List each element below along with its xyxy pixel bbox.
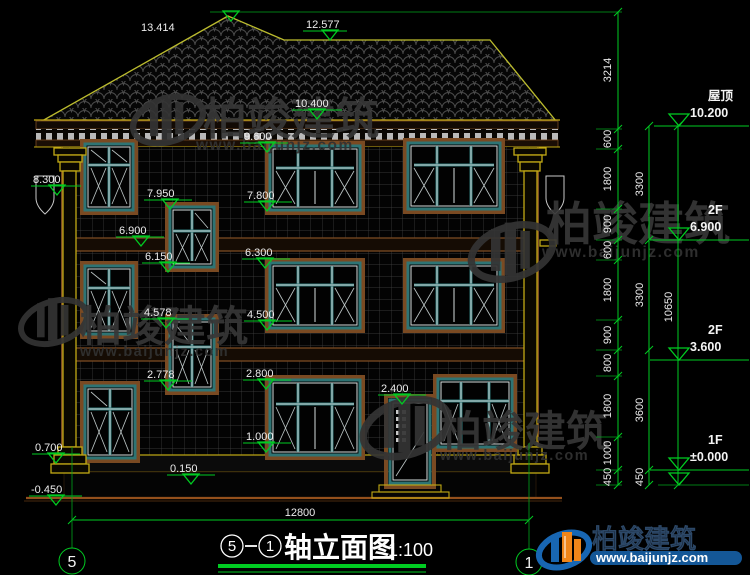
drawing-title: 轴立面图 <box>284 531 396 563</box>
title-bubble-right-number: 1 <box>266 538 274 555</box>
window-3f-stair <box>167 204 217 270</box>
title-block: 5 1 轴立面图 1:100 <box>218 531 433 572</box>
axis-number: 1 <box>525 555 534 572</box>
dim-subtotal: 3600 <box>634 398 646 422</box>
dim-segment: 3214 <box>602 58 614 82</box>
level-value: 2.778 <box>147 369 175 381</box>
brand-logo: 柏竣建筑 www.baijunjz.com <box>534 524 742 574</box>
level-value: 6.150 <box>145 251 173 263</box>
cad-elevation-screenshot: 柏竣建筑 www.baijunjz.com 柏竣建筑 www.baijunjz.… <box>0 0 750 575</box>
window-3f-right <box>405 140 503 212</box>
window-1f-center <box>267 377 363 458</box>
floor-name: 2F <box>708 323 723 337</box>
elevation-drawing: 柏竣建筑 www.baijunjz.com 柏竣建筑 www.baijunjz.… <box>0 0 750 575</box>
level-value: 13.414 <box>141 22 175 34</box>
watermark-top: 柏竣建筑 www.baijunjz.com <box>127 88 379 154</box>
window-3f-left <box>82 141 136 213</box>
dim-segment: 1800 <box>602 167 614 191</box>
title-bubble-left-number: 5 <box>228 538 236 555</box>
level-value: 12.577 <box>306 19 340 31</box>
watermark-url: www.baijunjz.com <box>541 244 700 261</box>
floor-elevation: ±0.000 <box>690 450 728 464</box>
level-value: 8.300 <box>33 174 61 186</box>
dim-subtotal: 3300 <box>634 172 646 196</box>
level-value: 0.700 <box>35 442 63 454</box>
dim-segment: 1000 <box>602 441 614 465</box>
axis-bubble-left: 5 <box>59 548 85 574</box>
dim-overall: 10650 <box>663 292 675 323</box>
brand-logo-url: www.baijunjz.com <box>595 550 708 565</box>
watermark-url: www.baijunjz.com <box>79 344 229 360</box>
level-value: 6.300 <box>245 247 273 259</box>
floor-elevation: 10.200 <box>690 106 728 120</box>
floor-name: 屋顶 <box>708 88 734 103</box>
dim-segment: 600 <box>602 130 614 148</box>
level-value: 9.600 <box>244 131 272 143</box>
level-value: 7.950 <box>147 188 175 200</box>
window-2f-center <box>267 260 363 331</box>
level-value: 2.800 <box>246 368 274 380</box>
axis-number: 5 <box>68 554 77 571</box>
level-value: 7.800 <box>247 190 275 202</box>
level-value: 4.578 <box>144 307 172 319</box>
overall-width-dim: 12800 <box>285 507 316 519</box>
dim-segment: 1800 <box>602 394 614 418</box>
level-value: 1.000 <box>246 431 274 443</box>
watermark-url: www.baijunjz.com <box>195 137 354 154</box>
drawing-scale: 1:100 <box>388 540 433 560</box>
title-underline-thick <box>218 564 426 568</box>
dim-segment: 600 <box>602 241 614 259</box>
level-value: 4.500 <box>247 309 275 321</box>
level-mark-12-577: 12.577 <box>303 19 347 40</box>
floor-name: 1F <box>708 433 723 447</box>
watermark-left: 柏竣建筑 www.baijunjz.com <box>15 292 248 360</box>
dim-segment: 900 <box>602 215 614 233</box>
brand-logo-icon <box>534 526 594 574</box>
level-value: 2.400 <box>381 383 409 395</box>
foundation <box>64 472 536 498</box>
window-1f-left <box>82 383 138 461</box>
level-value: -0.450 <box>31 484 62 496</box>
watermark-url: www.baijunjz.com <box>439 448 589 464</box>
ground-line <box>24 498 562 501</box>
floor-elevation: 3.600 <box>690 340 721 354</box>
level-value: 10.400 <box>295 98 329 110</box>
dim-segment: 1800 <box>602 278 614 302</box>
floor-band-3f <box>62 238 538 251</box>
floor-elevation: 6.900 <box>690 220 721 234</box>
dim-subtotal: 3300 <box>634 283 646 307</box>
floor-level-symbols: 屋顶 10.200 2F 6.900 2F 3.600 1F ±0.000 <box>650 88 749 485</box>
floor-level-roof: 屋顶 10.200 <box>654 88 749 126</box>
floor-name: 2F <box>708 203 723 217</box>
floor-level-1f: 1F ±0.000 <box>650 433 749 470</box>
level-value: 6.900 <box>119 225 147 237</box>
dim-segment: 450 <box>602 468 614 486</box>
dim-segment: 900 <box>602 326 614 344</box>
floor-level-ground <box>658 473 749 485</box>
window-2f-right <box>405 260 503 331</box>
dim-segment: 800 <box>602 354 614 372</box>
level-value: 0.150 <box>170 463 198 475</box>
dim-subtotal: 450 <box>634 468 646 486</box>
floor-level-2f: 2F 3.600 <box>650 323 749 360</box>
